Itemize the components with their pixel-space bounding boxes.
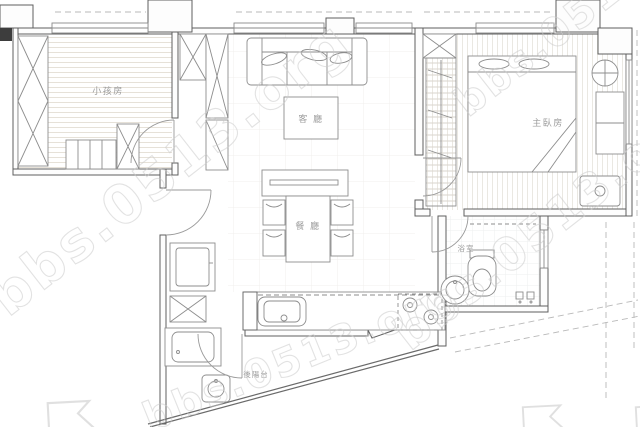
pier-dark-left	[0, 28, 12, 41]
wall-kids-left	[13, 28, 18, 175]
wall-bathroom-right-lower	[540, 268, 548, 312]
watermark-arrow-icon	[618, 387, 640, 427]
column-top-left	[0, 5, 33, 28]
bedroom-corner-cabinet	[423, 34, 456, 58]
watermark-arrow-icon	[505, 387, 591, 427]
kids-room-label: 小孩房	[92, 85, 124, 97]
kids-desk	[66, 140, 116, 169]
watermark-arrow-icon	[28, 381, 124, 427]
living-room-label: 客 廳	[298, 113, 323, 125]
window-kids	[52, 23, 148, 33]
hall-closet-upper	[180, 34, 206, 80]
kitchen-sink	[258, 297, 306, 326]
column-top-mid-left	[148, 0, 192, 32]
wall-kids-right-upper	[172, 28, 178, 118]
master-bedroom-label: 主臥房	[532, 117, 564, 129]
wall-bedroom-left-upper	[415, 28, 423, 155]
round-side-table	[592, 60, 618, 86]
window-living-2	[356, 23, 412, 33]
dining-room-label: 餐 廳	[295, 220, 320, 232]
wall-bedroom-bottom-a	[415, 209, 430, 216]
tv-cabinet	[262, 170, 348, 196]
washing-machine	[165, 328, 221, 366]
floor-plan-canvas: 小孩房 客 廳 餐 廳 主臥房 浴室 後陽台 bbs.0513.org bbs.…	[0, 0, 640, 427]
floor-plan-image: 小孩房 客 廳 餐 廳 主臥房 浴室 後陽台 bbs.0513.org bbs.…	[0, 0, 640, 427]
shoe-cabinet	[170, 243, 215, 291]
hall-storage-box	[170, 296, 206, 322]
kids-wardrobe	[18, 36, 48, 166]
column-bedroom-corner	[598, 28, 632, 54]
